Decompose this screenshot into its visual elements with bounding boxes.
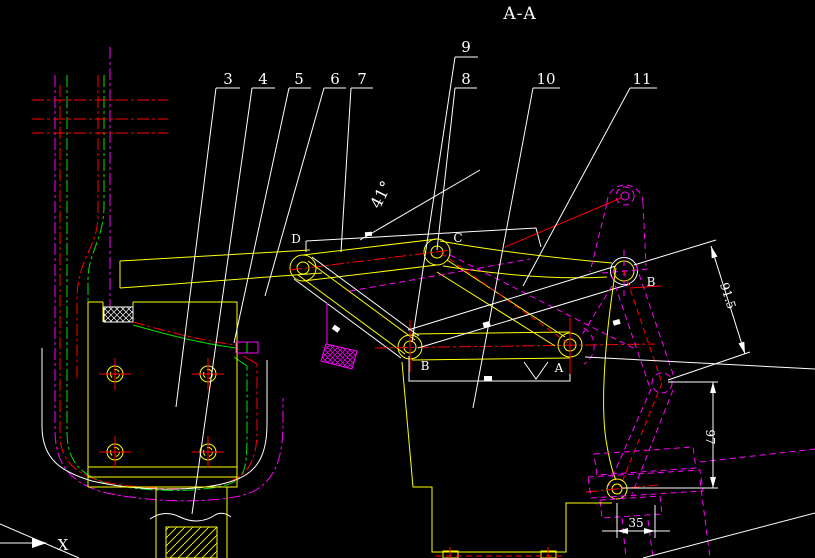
x-axis-indicator: X [0, 524, 79, 558]
dimension-angle-41: 41° [360, 170, 480, 240]
dimension-35: 35 [602, 503, 670, 538]
dim-97-text: 97 [703, 429, 717, 444]
label-d: D [291, 232, 301, 246]
bolt-hole [99, 358, 131, 390]
callout-5: 5 [294, 70, 304, 88]
axis-x-label: X [58, 536, 69, 554]
bolt-hole [99, 436, 131, 468]
mount-bracket [402, 362, 612, 558]
pad-section-hatch [104, 307, 133, 322]
label-b-left: B [421, 359, 430, 373]
joint-b-right [602, 250, 661, 296]
callout-7: 7 [357, 70, 367, 88]
mount-plate [88, 302, 258, 487]
dim-35-text: 35 [628, 516, 643, 530]
plate-stem [150, 487, 231, 558]
dim-91-5-text: 91.5 [717, 281, 739, 311]
link-b-right-lower [604, 265, 674, 494]
stop-block-hatch [321, 344, 357, 369]
cad-drawing-canvas[interactable]: 97 35 91.5 41° A-A 3 4 [0, 0, 815, 558]
dimension-91-5: 91.5 [634, 240, 750, 380]
box-arrows [332, 319, 621, 381]
cad-viewport[interactable]: 97 35 91.5 41° A-A 3 4 [0, 0, 815, 558]
label-c: C [453, 231, 462, 245]
bolt-hole [192, 436, 224, 468]
construction-lines [585, 357, 815, 558]
bolt-hole [192, 358, 224, 390]
section-title: A-A [502, 4, 536, 24]
stem-section-hatch [166, 527, 217, 558]
callout-6: 6 [330, 70, 340, 88]
joint-a [558, 318, 594, 374]
callout-4: 4 [258, 70, 268, 88]
label-b-right: B [647, 275, 656, 289]
label-a: A [554, 361, 564, 375]
dim-angle-text: 41° [366, 178, 396, 212]
joint-b-left [398, 320, 422, 372]
bracket-lower-right [588, 447, 815, 558]
callout-11: 11 [632, 70, 651, 88]
callout-8: 8 [461, 70, 471, 88]
callout-3: 3 [223, 70, 233, 88]
callout-10: 10 [536, 70, 555, 88]
callout-9: 9 [461, 38, 471, 56]
left-body-centerlines [32, 47, 283, 501]
